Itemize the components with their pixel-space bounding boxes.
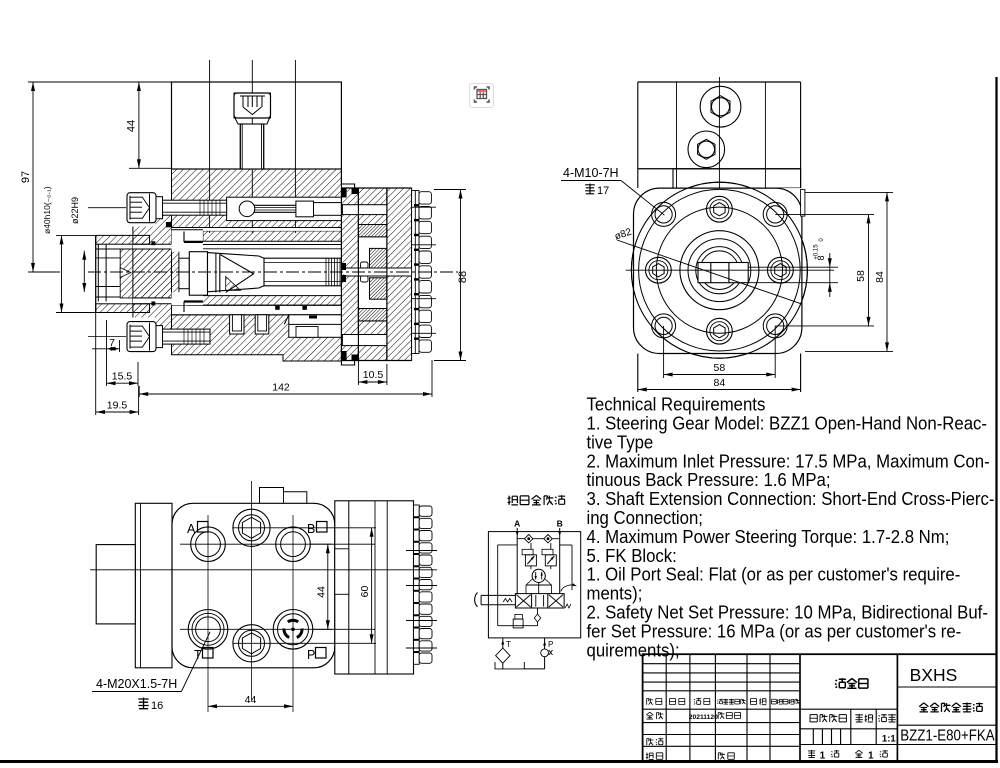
svg-text:5. FK Block:: 5. FK Block: (587, 545, 677, 566)
svg-text:4. Maximum Power Steering Torq: 4. Maximum Power Steering Torque: 1.7-2.… (587, 526, 950, 547)
svg-text:7: 7 (109, 337, 115, 349)
svg-text:44: 44 (245, 694, 257, 706)
svg-text:58: 58 (855, 270, 867, 282)
svg-text:B: B (557, 519, 563, 529)
svg-text:T: T (506, 640, 511, 649)
svg-text:88: 88 (457, 271, 469, 283)
svg-text:15.5: 15.5 (112, 371, 133, 383)
svg-text:3. Shaft Extension Connection:: 3. Shaft Extension Connection: Short-End… (587, 488, 995, 509)
svg-text:84: 84 (874, 271, 886, 283)
svg-text:tinuous Back Pressure: 1.6 MPa: tinuous Back Pressure: 1.6 MPa; (587, 469, 831, 490)
svg-text:B: B (307, 522, 315, 536)
svg-text:2. Maximum Inlet Pressure: 17.: 2. Maximum Inlet Pressure: 17.5 MPa, Max… (587, 451, 990, 472)
svg-text:BXHS: BXHS (910, 665, 958, 685)
svg-text:+0.15: +0.15 (814, 244, 820, 260)
svg-text:ø40h10(₋₀.₁): ø40h10(₋₀.₁) (42, 186, 52, 234)
svg-text:19.5: 19.5 (107, 400, 128, 412)
svg-text:17: 17 (597, 185, 609, 197)
svg-text:142: 142 (272, 382, 290, 394)
svg-text:ø22H9: ø22H9 (70, 197, 80, 224)
svg-text:4-M10-7H: 4-M10-7H (563, 166, 619, 180)
svg-text:44: 44 (315, 586, 327, 598)
svg-text:1:1: 1:1 (882, 734, 896, 745)
svg-text:A: A (514, 519, 520, 529)
svg-text:97: 97 (20, 171, 32, 183)
svg-text:quirements);: quirements); (587, 640, 680, 661)
svg-text:ing Connection;: ing Connection; (587, 507, 703, 528)
svg-text:ments);: ments); (587, 583, 643, 604)
svg-text:BZZ1-E80+FKA: BZZ1-E80+FKA (900, 728, 995, 745)
svg-text:16: 16 (151, 700, 163, 712)
svg-text:T: T (194, 648, 202, 662)
svg-text:P: P (548, 640, 553, 649)
svg-text:fer Set Pressure: 16 MPa (or a: fer Set Pressure: 16 MPa (or as per cust… (587, 621, 962, 642)
svg-text:58: 58 (714, 362, 726, 374)
svg-text:Technical Requirements: Technical Requirements (587, 394, 766, 415)
svg-text:P: P (307, 648, 315, 662)
svg-text:20211120: 20211120 (689, 714, 718, 721)
svg-text:1. Oil Port Seal: Flat (or as: 1. Oil Port Seal: Flat (or as per custom… (587, 564, 961, 585)
svg-text:1: 1 (868, 750, 874, 761)
svg-text:60: 60 (359, 586, 371, 598)
svg-text:1: 1 (820, 750, 826, 761)
svg-text:10.5: 10.5 (363, 369, 384, 381)
svg-text:A: A (187, 522, 196, 536)
svg-text:4-M20X1.5-7H: 4-M20X1.5-7H (96, 677, 177, 691)
svg-text:1. Steering Gear Model: BZZ1 O: 1. Steering Gear Model: BZZ1 Open-Hand N… (587, 413, 988, 434)
svg-text:44: 44 (126, 120, 138, 132)
svg-text:tive Type: tive Type (587, 432, 654, 453)
svg-text:84: 84 (714, 377, 726, 389)
svg-text:2. Safety Net Set Pressure: 10: 2. Safety Net Set Pressure: 10 MPa, Bidi… (587, 602, 989, 623)
